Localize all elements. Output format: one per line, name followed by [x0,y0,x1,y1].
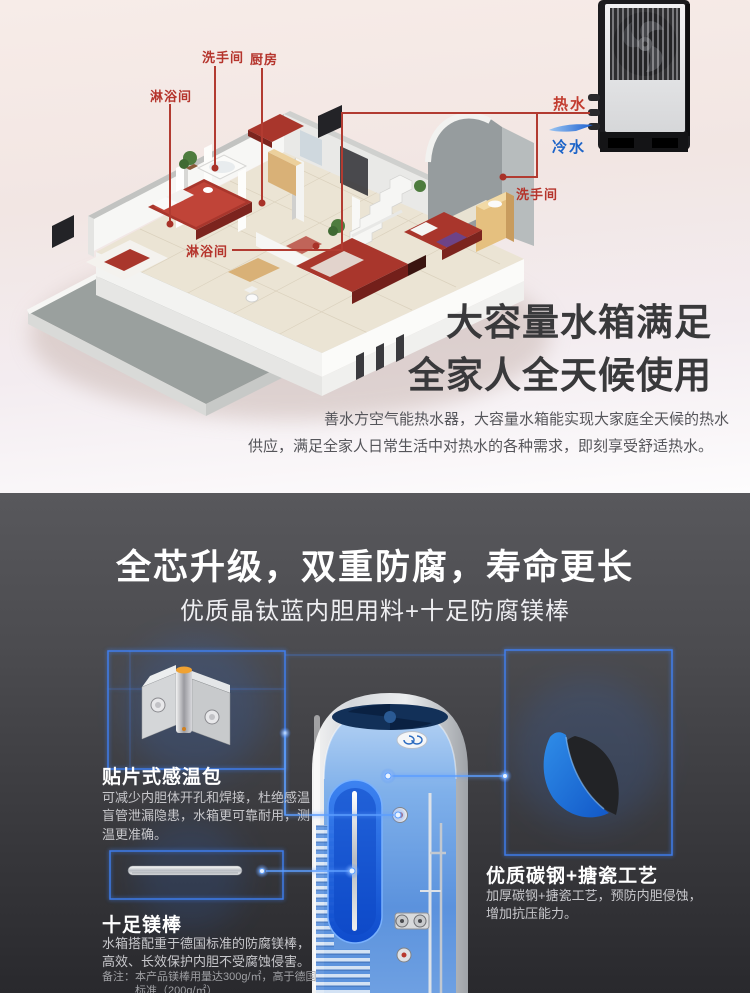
heat-pump-unit [588,0,690,152]
dark-title: 全芯升级，双重防腐，寿命更长 [0,539,750,590]
rod-note-line1: 备注：本产品镁棒用量达300g/㎡，高于德国 [102,970,332,984]
water-tank-cutaway [312,693,468,993]
tank-logo [397,732,427,749]
label-washroom-top: 洗手间 [202,47,244,66]
dark-subtitle: 优质晶钛蓝内胆用料+十足防腐镁棒 [0,591,750,626]
label-washroom-right: 洗手间 [516,184,558,203]
feature-sensor-title: 贴片式感温包 [102,762,222,789]
feature-rod-note: 备注：本产品镁棒用量达300g/㎡，高于德国 标准（200g/㎡） [102,970,332,993]
feature-enamel-title: 优质碳钢+搪瓷工艺 [486,861,658,888]
magnesium-rod [128,866,242,875]
headline: 大容量水箱满足 全家人全天候使用 [408,297,712,402]
cold-water-arrow [549,124,593,131]
label-shower-left: 淋浴间 [150,86,192,105]
feature-rod-title: 十足镁棒 [102,910,182,937]
rod-note-line2: 标准（200g/㎡） [102,984,332,993]
headline-line1: 大容量水箱满足 [408,297,712,350]
feature-enamel-desc: 加厚碳钢+搪瓷工艺，预防内胆侵蚀，增加抗压能力。 [486,887,714,924]
label-cold-water: 冷水 [552,136,586,157]
label-kitchen: 厨房 [250,49,278,68]
label-shower-bottom: 淋浴间 [186,241,228,260]
feature-rod-desc: 水箱搭配重于德国标准的防腐镁棒，高效、长效保护内胆不受腐蚀侵害。 [102,935,318,972]
headline-line2: 全家人全天候使用 [408,350,712,403]
top-section: 淋浴间 洗手间 厨房 淋浴间 洗手间 热水 冷水 大容量水箱满足 全家人全天候使… [0,0,750,493]
body-line2: 供应，满足全家人日常生活中对热水的各种需求，即刻享受舒适热水。 [248,433,748,460]
label-hot-water: 热水 [553,93,587,114]
body-line1: 善水方空气能热水器，大容量水箱能实现大家庭全天候的热水 [248,406,748,433]
fan-icon [610,8,680,80]
feature-sensor-desc: 可减少内胆体开孔和焊接，杜绝感温盲管泄漏隐患，水箱更可靠耐用，测温更准确。 [102,789,314,844]
body-copy: 善水方空气能热水器，大容量水箱能实现大家庭全天候的热水 供应，满足全家人日常生活… [248,406,748,460]
product-detail-page: 淋浴间 洗手间 厨房 淋浴间 洗手间 热水 冷水 大容量水箱满足 全家人全天候使… [0,0,750,993]
dark-section: 全芯升级，双重防腐，寿命更长 优质晶钛蓝内胆用料+十足防腐镁棒 贴片式感温包 可… [0,493,750,993]
